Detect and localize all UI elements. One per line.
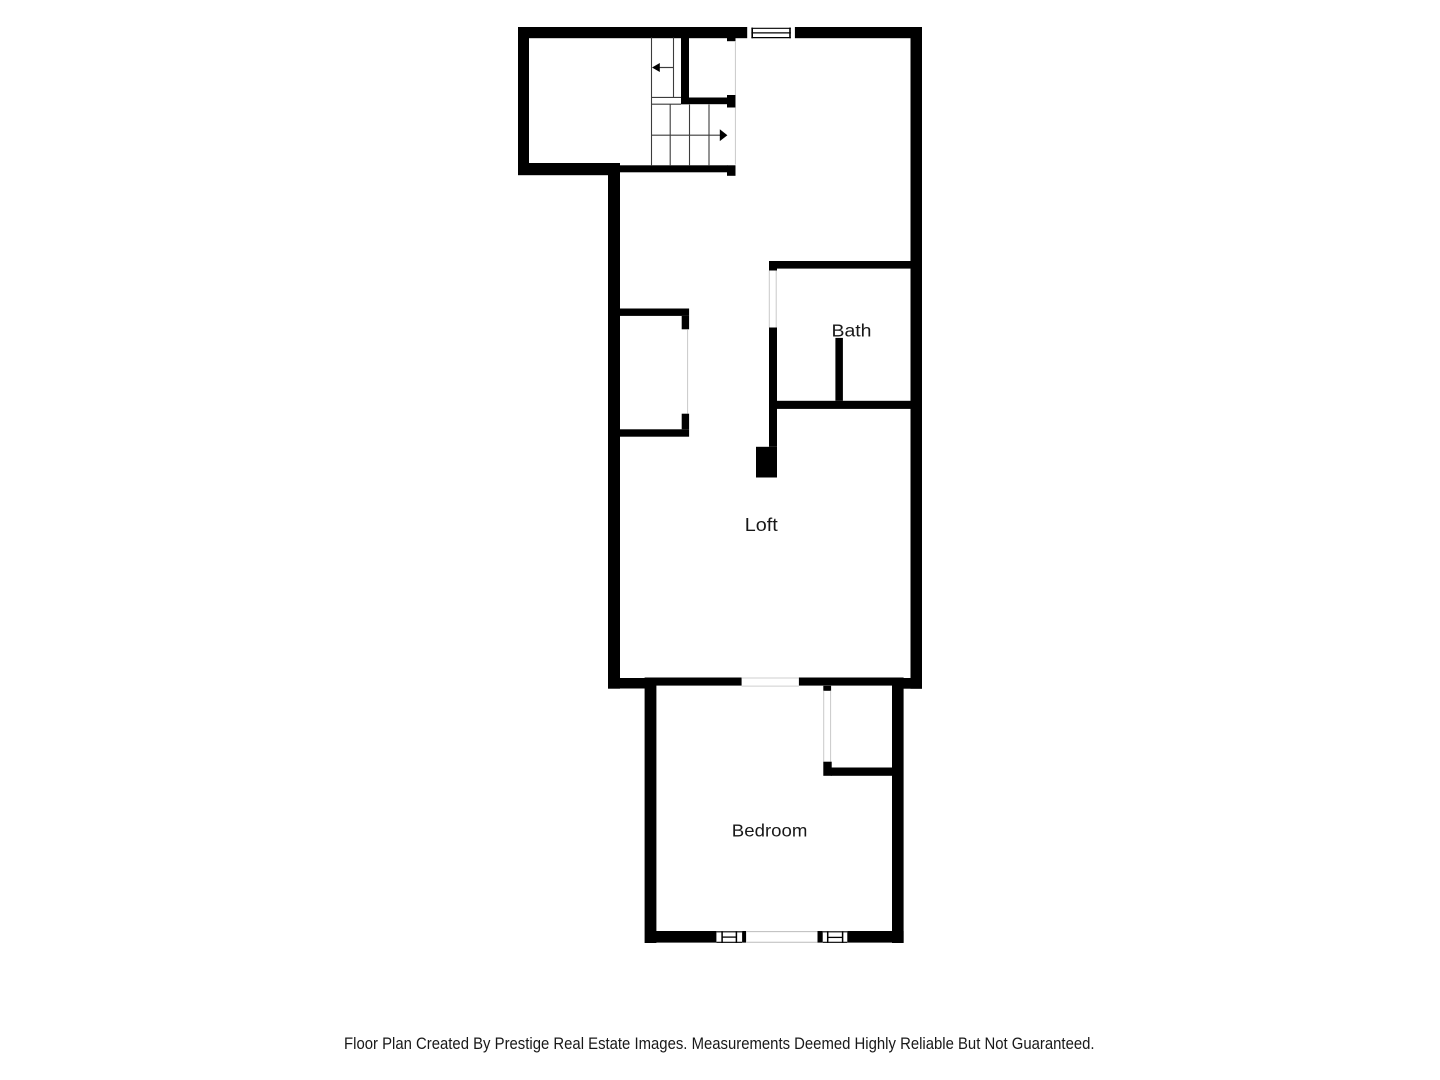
svg-text:Floor Plan Created By Prestige: Floor Plan Created By Prestige Real Esta… <box>344 1034 1095 1053</box>
svg-text:Bath: Bath <box>832 321 872 341</box>
svg-text:Loft: Loft <box>745 515 778 535</box>
svg-text:Bedroom: Bedroom <box>732 820 808 840</box>
